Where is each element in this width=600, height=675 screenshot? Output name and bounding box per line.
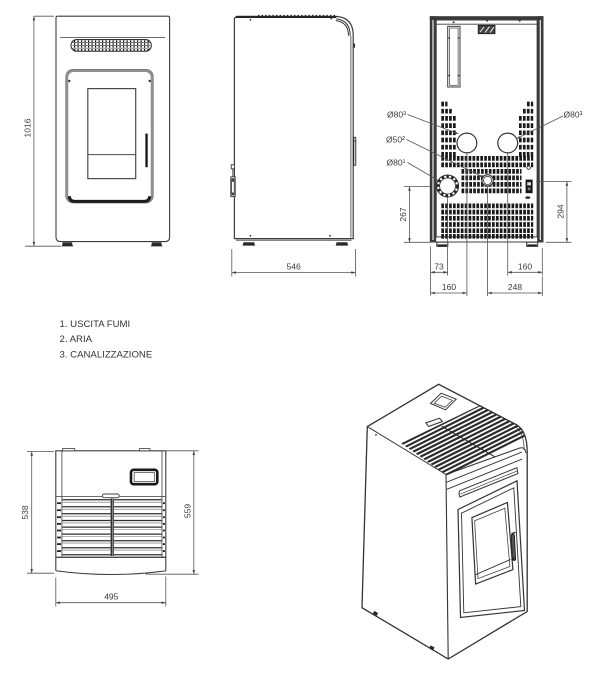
svg-text:160: 160 (518, 261, 532, 271)
svg-text:3. CANALIZZAZIONE: 3. CANALIZZAZIONE (60, 349, 153, 360)
svg-text:267: 267 (398, 207, 408, 221)
svg-text:Ø80³: Ø80³ (564, 110, 583, 120)
svg-text:Ø50²: Ø50² (386, 135, 405, 145)
svg-text:Ø80¹: Ø80¹ (387, 158, 406, 168)
svg-text:1016: 1016 (23, 118, 33, 137)
svg-text:248: 248 (508, 282, 522, 292)
svg-text:559: 559 (182, 504, 192, 518)
svg-text:2. ARIA: 2. ARIA (60, 334, 93, 345)
svg-text:546: 546 (287, 262, 301, 272)
svg-text:1. USCITA FUMI: 1. USCITA FUMI (60, 319, 131, 330)
svg-text:Ø80³: Ø80³ (387, 110, 406, 120)
svg-text:73: 73 (434, 261, 444, 271)
svg-text:294: 294 (555, 204, 565, 218)
svg-text:495: 495 (104, 592, 118, 602)
svg-text:538: 538 (20, 505, 30, 519)
svg-text:160: 160 (442, 282, 456, 292)
